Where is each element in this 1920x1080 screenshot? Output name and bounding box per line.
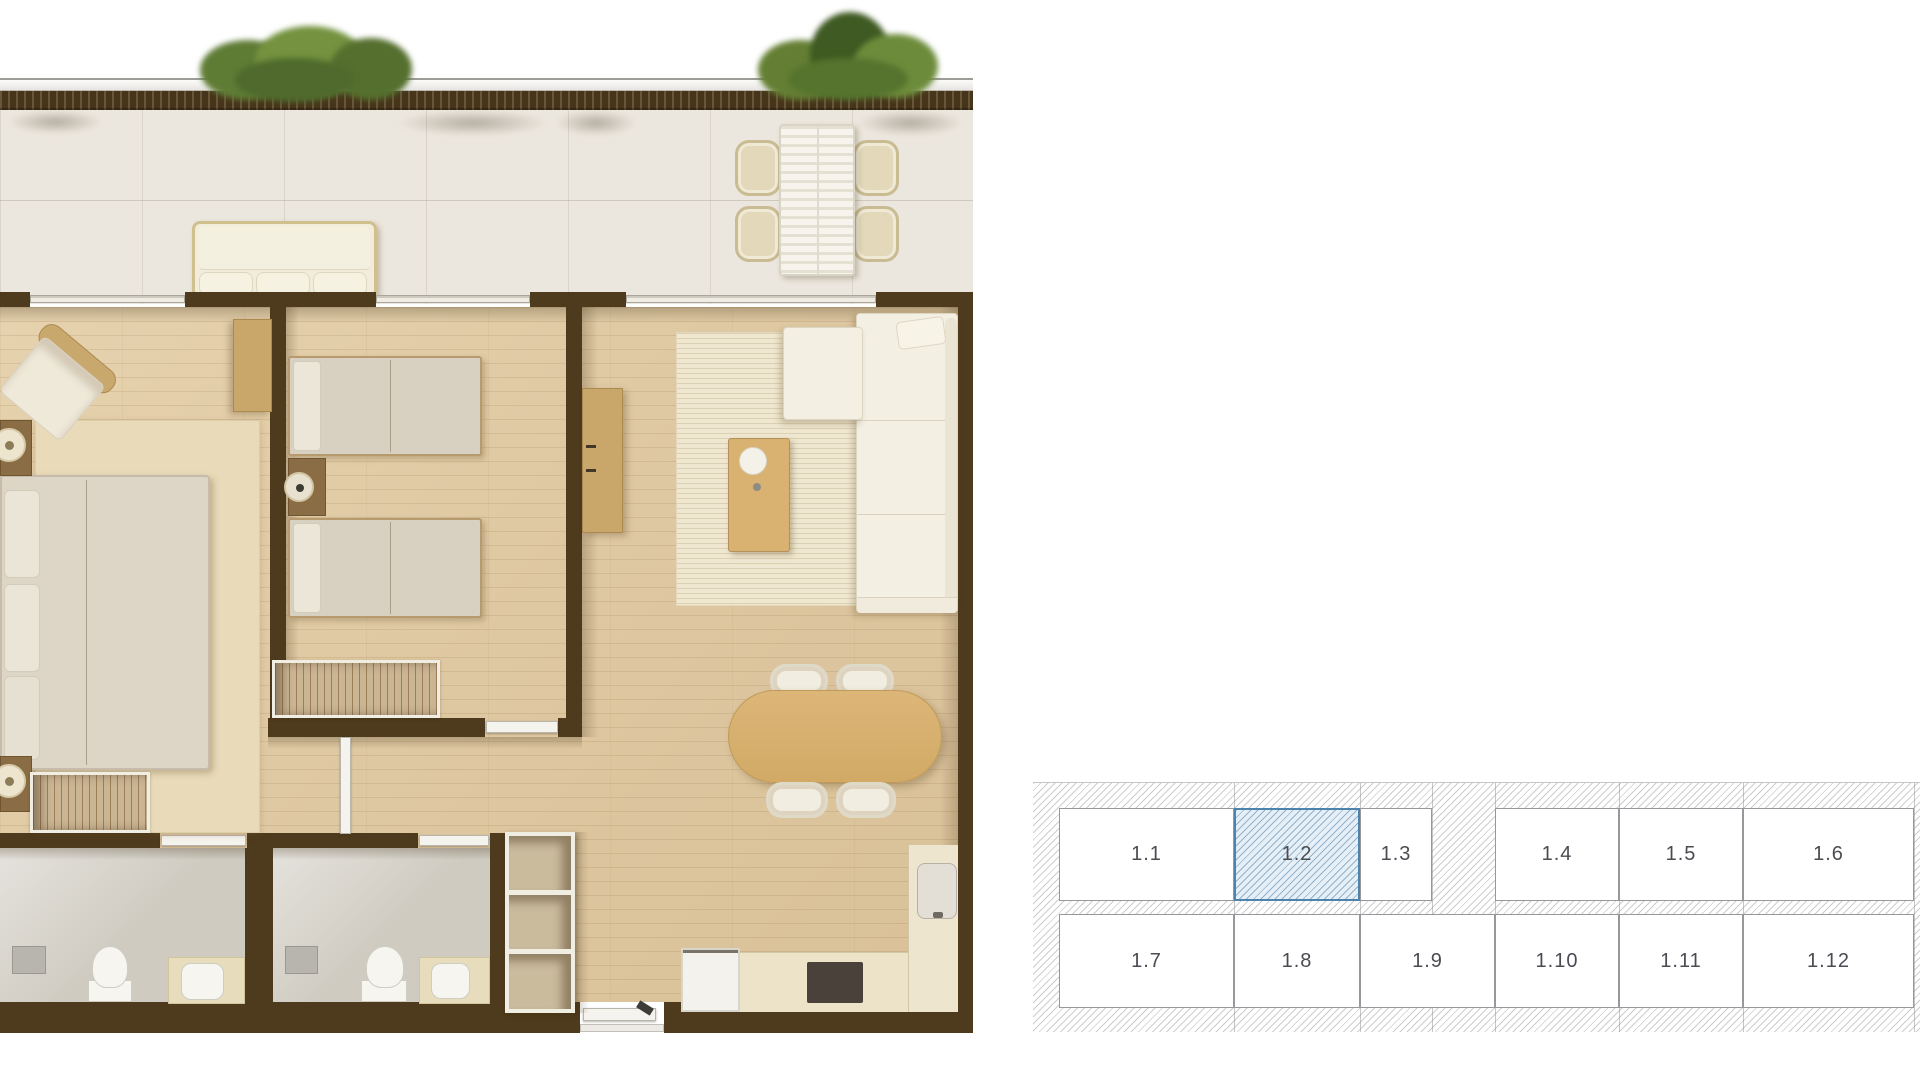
- master-bed: [0, 475, 210, 770]
- unit-label: 1.1: [1131, 843, 1162, 866]
- terrace-dining-table: [779, 124, 855, 276]
- unit-label: 1.5: [1666, 843, 1697, 866]
- terrace-chair: [735, 206, 781, 262]
- coffee-table: [728, 438, 790, 552]
- shadow-overlay: [0, 307, 958, 323]
- cooktop: [807, 962, 863, 1003]
- dining-chair: [766, 782, 828, 818]
- dresser: [233, 319, 272, 412]
- interior-wall: [0, 833, 160, 848]
- door-leaf: [419, 835, 489, 846]
- shadow-overlay: [0, 848, 245, 860]
- pillow: [293, 523, 321, 613]
- single-bed: [288, 356, 482, 456]
- bathroom-divider-wall: [245, 848, 273, 1005]
- pillow: [4, 584, 40, 672]
- door-leaf: [486, 721, 558, 733]
- interior-wall: [247, 833, 418, 848]
- sink: [181, 963, 224, 1000]
- unit-label: 1.2: [1282, 843, 1313, 866]
- unit-cell-1-11[interactable]: 1.11: [1619, 914, 1743, 1008]
- unit-cell-1-9[interactable]: 1.9: [1360, 914, 1495, 1008]
- shower-panel: [12, 946, 46, 974]
- unit-cell-1-4[interactable]: 1.4: [1495, 808, 1619, 901]
- unit-selector-map: 1.1 1.2 1.3 1.4 1.5 1.6 1.7 1.8 1.9 1.10…: [1033, 782, 1920, 1032]
- terrace-chair: [853, 140, 899, 196]
- sliding-door: [30, 295, 185, 303]
- sofa: [856, 313, 958, 613]
- single-bed: [288, 518, 482, 618]
- toilet-bowl: [92, 946, 128, 988]
- unit-label: 1.4: [1542, 843, 1573, 866]
- unit-cell-1-8[interactable]: 1.8: [1234, 914, 1360, 1008]
- interior-wall: [270, 307, 286, 718]
- fridge: [681, 948, 740, 1012]
- shadow-overlay: [398, 110, 548, 136]
- shadow-overlay: [858, 110, 963, 136]
- closet-hangers: [272, 660, 440, 718]
- door-leaf: [161, 835, 246, 846]
- unit-cell-1-3[interactable]: 1.3: [1360, 808, 1432, 901]
- tv-sideboard: [582, 388, 623, 533]
- shower-panel: [285, 946, 318, 974]
- unit-cell-1-12[interactable]: 1.12: [1743, 914, 1914, 1008]
- unit-cell-1-7[interactable]: 1.7: [1059, 914, 1234, 1008]
- exterior-wall: [185, 292, 376, 307]
- shadow-overlay: [8, 110, 103, 134]
- terrace-sofa: [192, 221, 377, 299]
- shelf-unit: [505, 832, 575, 1013]
- sink: [431, 963, 470, 999]
- sliding-door: [626, 295, 876, 303]
- shadow-overlay: [273, 848, 490, 860]
- unit-cell-1-10[interactable]: 1.10: [1495, 914, 1619, 1008]
- unit-cell-1-6[interactable]: 1.6: [1743, 808, 1914, 901]
- shadow-overlay: [556, 110, 636, 136]
- exterior-wall-bottom: [0, 1002, 580, 1033]
- sofa-chaise: [783, 327, 863, 420]
- floor-plan-viewer: 1.1 1.2 1.3 1.4 1.5 1.6 1.7 1.8 1.9 1.10…: [0, 0, 1920, 1080]
- exterior-wall: [530, 292, 626, 307]
- terrace-chair: [735, 140, 781, 196]
- table-lamp: [284, 472, 314, 502]
- pillow: [4, 490, 40, 578]
- unit-label: 1.7: [1131, 950, 1162, 973]
- dining-table: [728, 690, 942, 783]
- unit-label: 1.3: [1381, 843, 1412, 866]
- unit-cell-1-2-selected[interactable]: 1.2: [1234, 808, 1360, 901]
- shadow-overlay: [575, 832, 589, 1013]
- pillow: [4, 676, 40, 760]
- plant-cluster: [200, 18, 412, 104]
- exterior-wall-right: [958, 292, 973, 1033]
- pillow: [293, 361, 321, 451]
- closet-hangers: [30, 772, 150, 833]
- entrance-threshold: [580, 1024, 664, 1032]
- interior-wall: [566, 307, 582, 737]
- unit-label: 1.6: [1813, 843, 1844, 866]
- grid-line: [1914, 783, 1915, 1032]
- shadow-overlay: [268, 737, 582, 749]
- plant-cluster: [758, 10, 938, 108]
- unit-label: 1.12: [1807, 950, 1850, 973]
- door-leaf: [340, 737, 351, 834]
- unit-cell-1-1[interactable]: 1.1: [1059, 808, 1234, 901]
- unit-label: 1.8: [1282, 950, 1313, 973]
- unit-label: 1.11: [1660, 950, 1701, 973]
- exterior-wall: [0, 292, 30, 307]
- interior-wall: [490, 848, 505, 1005]
- toilet-bowl: [366, 946, 404, 988]
- dining-chair: [836, 782, 896, 818]
- unit-cell-1-5[interactable]: 1.5: [1619, 808, 1743, 901]
- interior-wall: [268, 718, 485, 737]
- terrace-chair: [853, 206, 899, 262]
- kitchen-sink: [917, 863, 957, 919]
- unit-label: 1.9: [1412, 950, 1443, 973]
- sliding-door: [376, 295, 530, 303]
- unit-label: 1.10: [1536, 950, 1579, 973]
- floor-plan: [0, 0, 980, 1080]
- interior-wall: [558, 718, 582, 737]
